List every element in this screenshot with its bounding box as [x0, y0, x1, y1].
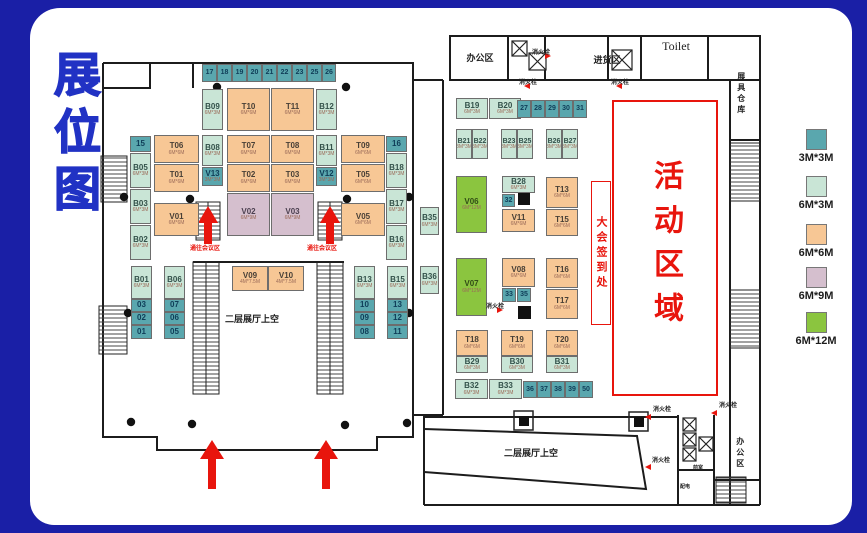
booth-map-poster: 171819202122232526B096M*3MT106M*6MT116M*…: [0, 0, 867, 533]
floorplan-walls: [0, 0, 867, 533]
page-title: 展位图: [38, 50, 107, 221]
